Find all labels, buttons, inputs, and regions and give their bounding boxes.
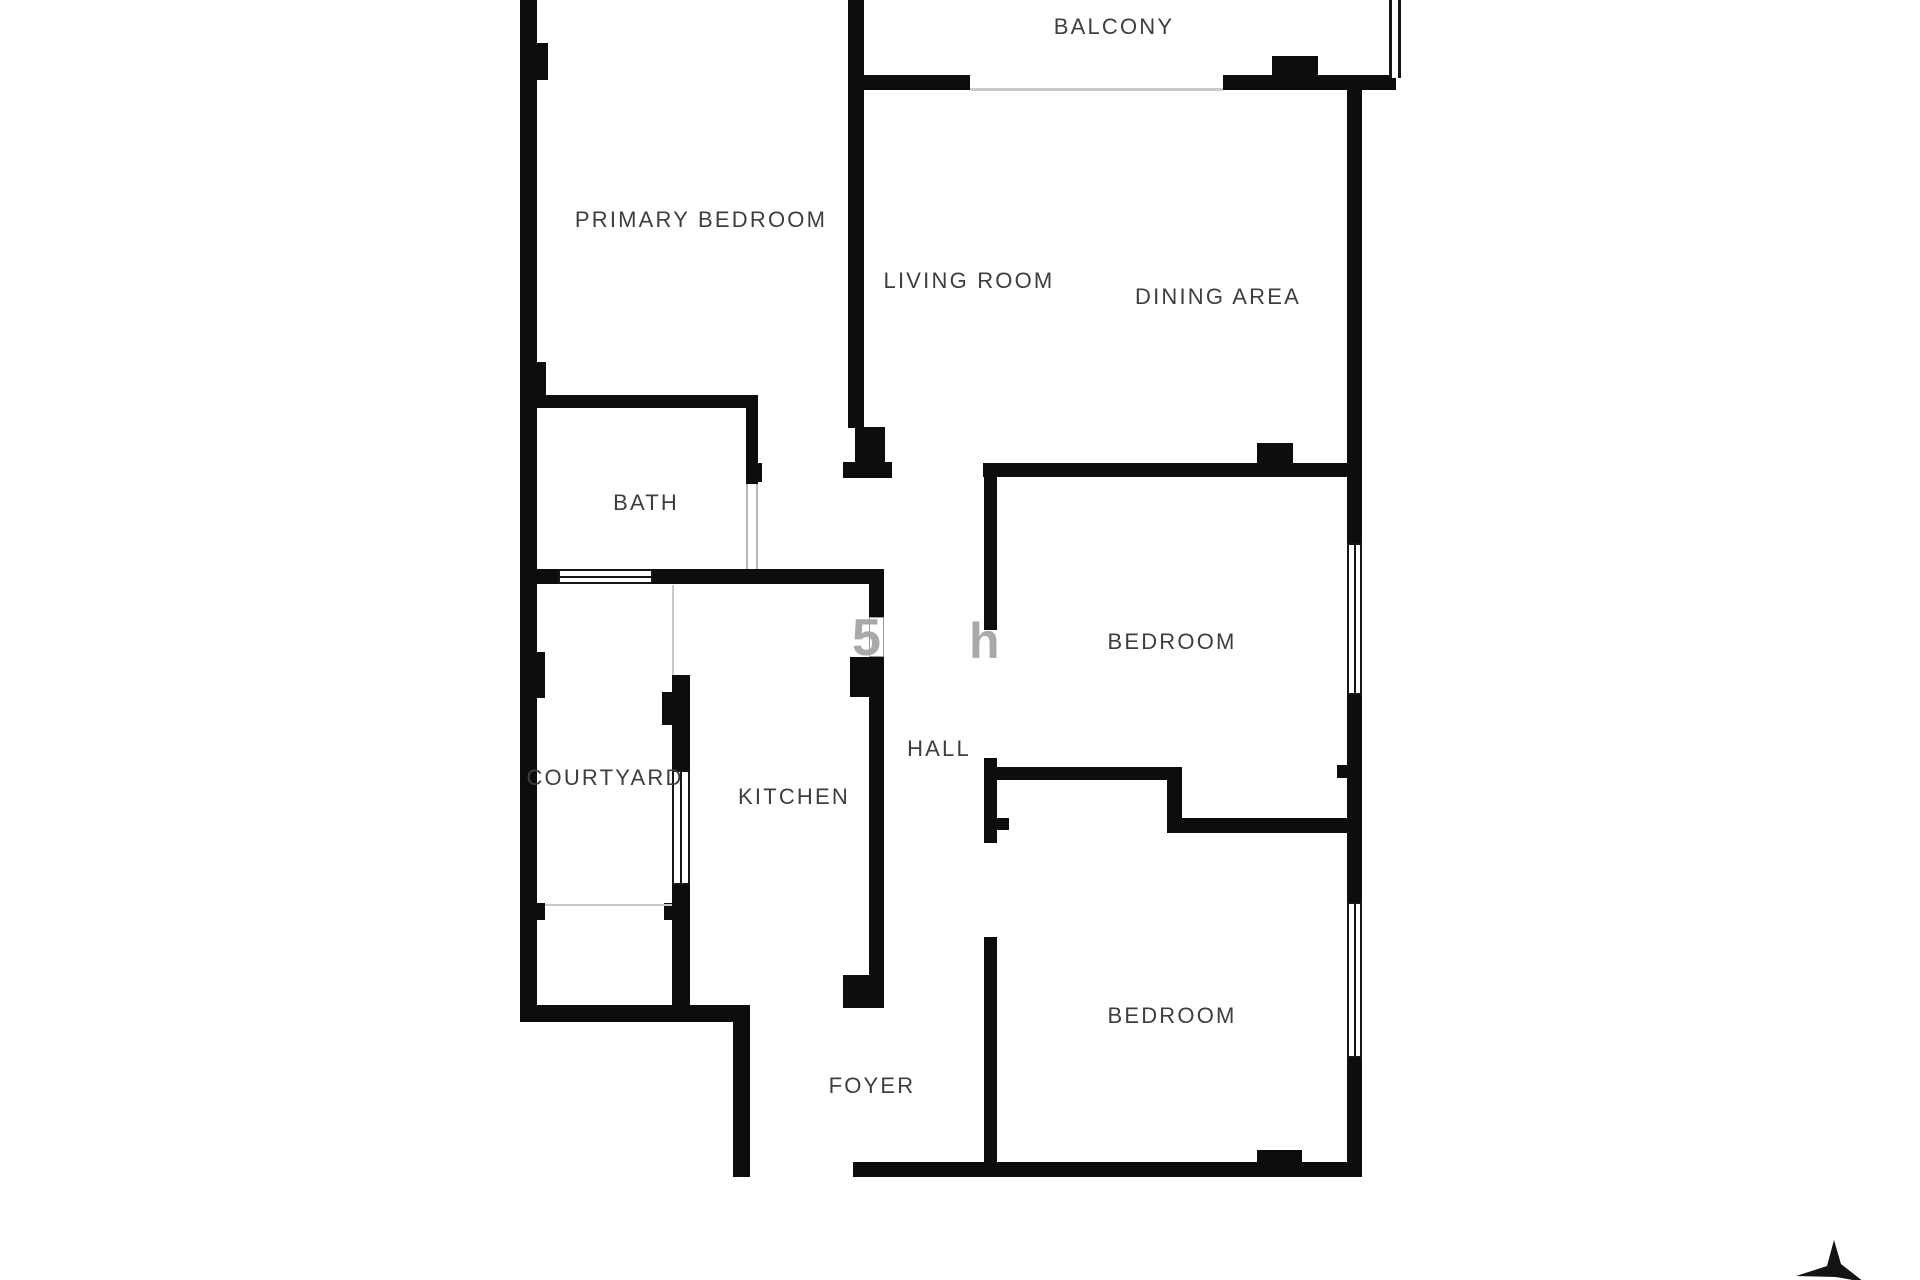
opening-line (545, 904, 672, 906)
wall-segment (672, 885, 690, 1022)
wall-segment (653, 569, 884, 584)
window (1347, 543, 1362, 695)
room-label-living-room: LIVING ROOM (884, 268, 1055, 294)
window-pane-line (1354, 545, 1356, 693)
wall-segment (520, 1005, 750, 1022)
wall-segment (855, 427, 885, 463)
door-jamb-line (746, 484, 748, 569)
wall-segment (520, 569, 558, 584)
wall-segment (1257, 443, 1293, 463)
room-label-primary-bedroom: PRIMARY BEDROOM (575, 207, 827, 233)
wall-segment (672, 675, 690, 770)
opening-line (970, 88, 1223, 91)
wall-segment (1347, 1058, 1362, 1177)
wall-segment (983, 463, 1362, 477)
watermark-letter: 5 (852, 612, 881, 664)
floor-plan: BALCONYPRIMARY BEDROOMLIVING ROOMDINING … (0, 0, 1920, 1280)
wall-segment (733, 1020, 750, 1177)
window (558, 569, 653, 584)
wall-segment (1257, 1150, 1302, 1164)
wall-segment (997, 818, 1009, 830)
room-label-foyer: FOYER (829, 1073, 916, 1099)
window (1347, 902, 1362, 1058)
door-jamb-line (756, 484, 758, 569)
room-label-dining-area: DINING AREA (1135, 284, 1301, 310)
wall-segment (1337, 765, 1347, 778)
room-label-hall: HALL (907, 736, 971, 762)
wall-segment (853, 1162, 1362, 1177)
wall-segment (662, 692, 672, 725)
room-label-bedroom-2: BEDROOM (1107, 1003, 1236, 1029)
window-pane-line (1354, 904, 1356, 1056)
opening-line (672, 585, 674, 675)
room-label-courtyard: COURTYARD (526, 765, 683, 791)
wall-segment (537, 652, 545, 698)
window-pane-line (560, 576, 651, 578)
balcony-railing (1389, 0, 1401, 78)
wall-segment (537, 43, 548, 80)
wall-segment (520, 395, 758, 408)
wall-segment (520, 0, 537, 1022)
room-label-bedroom-1: BEDROOM (1107, 629, 1236, 655)
wall-segment (1223, 75, 1396, 90)
wall-segment (984, 477, 997, 630)
room-label-balcony: BALCONY (1054, 14, 1175, 40)
wall-segment (869, 697, 884, 975)
watermark-letter: h (969, 616, 1000, 666)
wall-segment (848, 75, 970, 90)
wall-segment (1347, 695, 1362, 902)
wall-segment (843, 462, 892, 478)
wall-segment (1272, 56, 1318, 75)
wall-segment (984, 937, 997, 1162)
room-label-bath: BATH (613, 490, 679, 516)
compass-north-icon (1790, 1238, 1870, 1280)
wall-segment (984, 767, 1182, 780)
room-label-kitchen: KITCHEN (738, 784, 850, 810)
wall-segment (537, 903, 545, 920)
wall-segment (848, 0, 864, 428)
wall-segment (843, 975, 884, 1008)
wall-segment (1167, 818, 1362, 833)
wall-segment (754, 463, 762, 482)
